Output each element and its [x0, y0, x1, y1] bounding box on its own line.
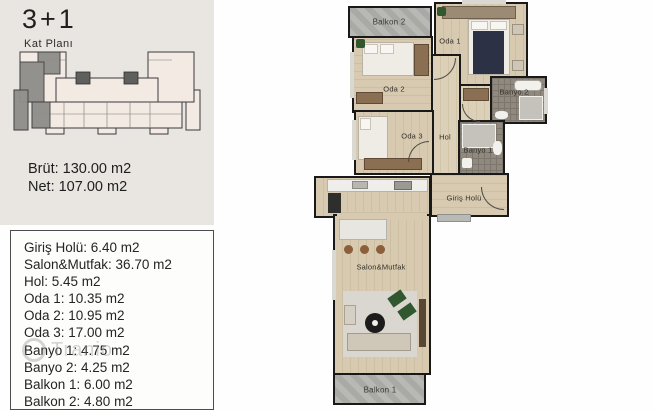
sink	[493, 141, 502, 155]
window	[350, 52, 354, 98]
stove	[394, 181, 412, 190]
label-balkon-1: Balkon 1	[364, 386, 397, 395]
side-table	[344, 305, 356, 325]
pillow	[471, 21, 488, 30]
bar-stool	[360, 245, 369, 254]
pillow	[380, 44, 394, 54]
dresser	[356, 92, 383, 104]
sofa	[347, 333, 411, 351]
floor-plan: Balkon 2 Oda 1 Oda 2 Banyo 2 Oda 3 Hol B…	[0, 0, 655, 407]
pillow	[490, 21, 507, 30]
wardrobe	[442, 6, 516, 19]
shower	[519, 96, 543, 120]
label-oda-2: Oda 2	[383, 85, 404, 94]
kitchen-counter	[327, 179, 428, 192]
label-banyo-2: Banyo 2	[500, 88, 529, 97]
tv-unit	[419, 299, 426, 347]
window	[332, 250, 336, 300]
label-oda-3: Oda 3	[401, 132, 422, 141]
entry-ledge	[437, 214, 471, 222]
label-banyo-1: Banyo 1	[464, 146, 493, 155]
label-balkon-2: Balkon 2	[373, 18, 406, 27]
kitchen-island	[339, 219, 387, 240]
window	[462, 0, 506, 4]
kitchen-sink	[352, 181, 368, 189]
bar-stool	[376, 245, 385, 254]
label-giris-holu: Giriş Holü	[447, 194, 482, 203]
nightstand	[512, 60, 524, 71]
nightstand	[512, 24, 524, 35]
table-plant-icon	[372, 320, 378, 326]
pillow	[360, 118, 371, 130]
bed-cover	[473, 31, 504, 74]
toilet	[462, 158, 472, 168]
bar-stool	[344, 245, 353, 254]
label-hol: Hol	[439, 133, 451, 142]
wardrobe	[414, 44, 429, 76]
wardrobe	[463, 88, 489, 101]
window	[352, 120, 356, 160]
plant-icon	[437, 7, 446, 16]
label-salon-mutfak: Salon&Mutfak	[356, 263, 405, 272]
pillow	[364, 44, 378, 54]
window	[544, 88, 548, 114]
shower	[462, 124, 496, 148]
sink	[495, 111, 508, 119]
label-oda-1: Oda 1	[439, 37, 460, 46]
fridge	[328, 193, 341, 213]
plant-icon	[356, 39, 365, 48]
